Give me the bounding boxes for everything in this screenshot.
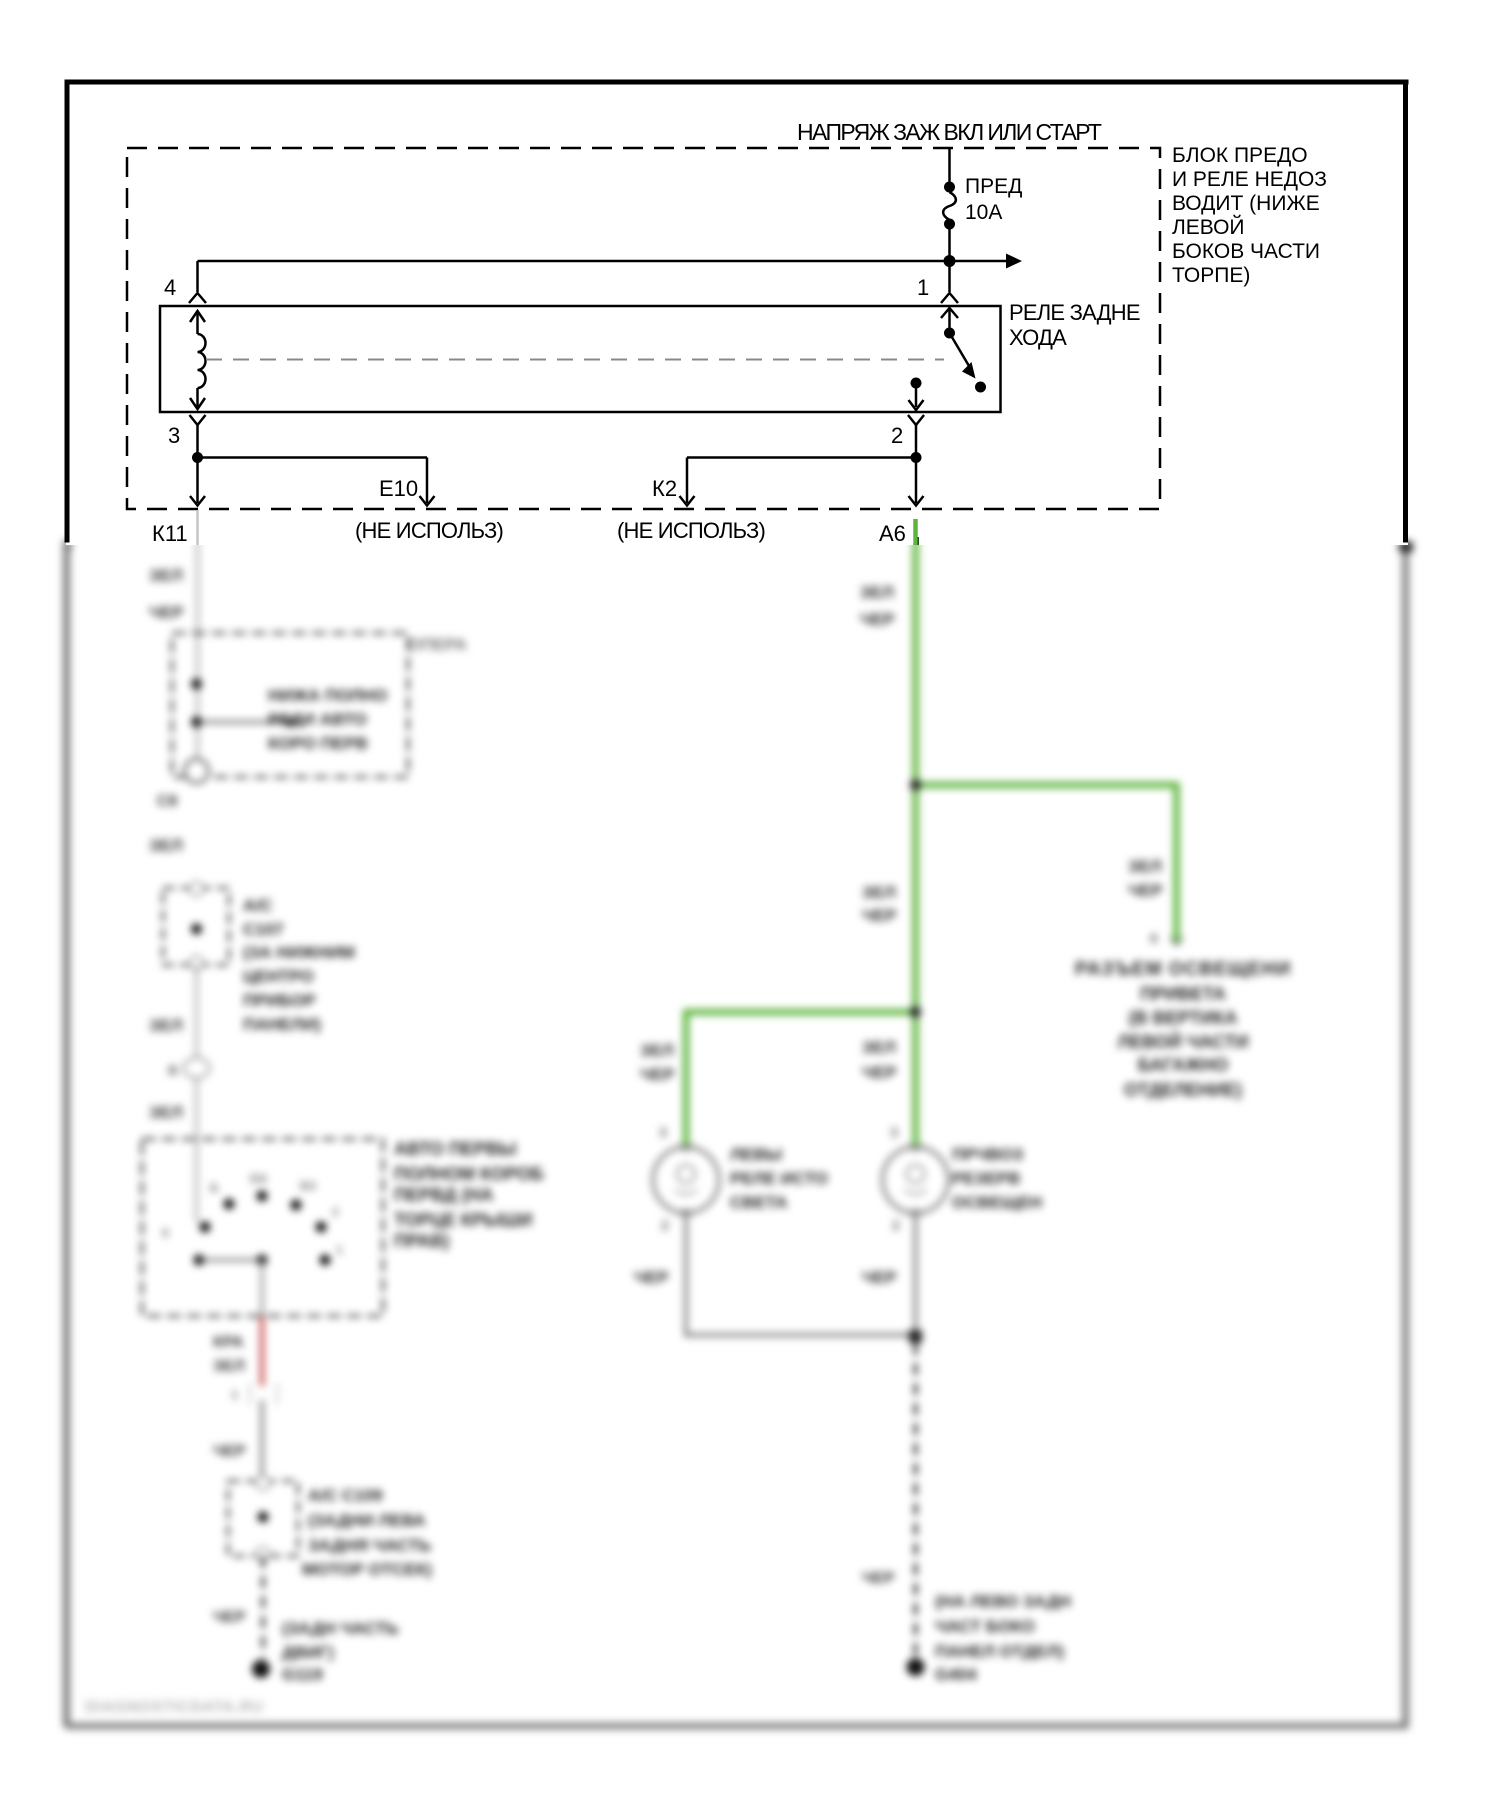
svg-text:3: 3	[168, 423, 180, 448]
svg-text:БЛОК ПРЕДО: БЛОК ПРЕДО	[1172, 144, 1308, 167]
svg-text:К2: К2	[652, 476, 677, 501]
svg-text:(НЕ ИСПОЛЬЗ): (НЕ ИСПОЛЬЗ)	[355, 518, 503, 543]
svg-text:И РЕЛЕ НЕДОЗ: И РЕЛЕ НЕДОЗ	[1172, 168, 1327, 191]
svg-text:БОКОВ ЧАСТИ: БОКОВ ЧАСТИ	[1172, 240, 1320, 263]
svg-text:Е10: Е10	[379, 476, 418, 501]
svg-text:1: 1	[917, 275, 929, 300]
svg-text:2: 2	[891, 423, 903, 448]
svg-text:ПРЕД: ПРЕД	[965, 175, 1022, 198]
svg-text:(НЕ ИСПОЛЬЗ): (НЕ ИСПОЛЬЗ)	[617, 518, 765, 543]
svg-text:10А: 10А	[965, 201, 1002, 224]
svg-text:РЕЛЕ ЗАДНЕ: РЕЛЕ ЗАДНЕ	[1009, 300, 1140, 325]
svg-text:4: 4	[164, 275, 176, 300]
svg-text:НАПРЯЖ ЗАЖ ВКЛ ИЛИ СТАРТ: НАПРЯЖ ЗАЖ ВКЛ ИЛИ СТАРТ	[797, 119, 1102, 145]
svg-text:ВОДИТ (НИЖЕ: ВОДИТ (НИЖЕ	[1172, 192, 1320, 215]
svg-text:ХОДА: ХОДА	[1009, 325, 1067, 350]
svg-text:К11: К11	[152, 521, 188, 546]
svg-text:ЛЕВОЙ: ЛЕВОЙ	[1172, 215, 1245, 239]
svg-text:ТОРПЕ): ТОРПЕ)	[1172, 264, 1250, 287]
svg-text:А6: А6	[879, 521, 906, 546]
